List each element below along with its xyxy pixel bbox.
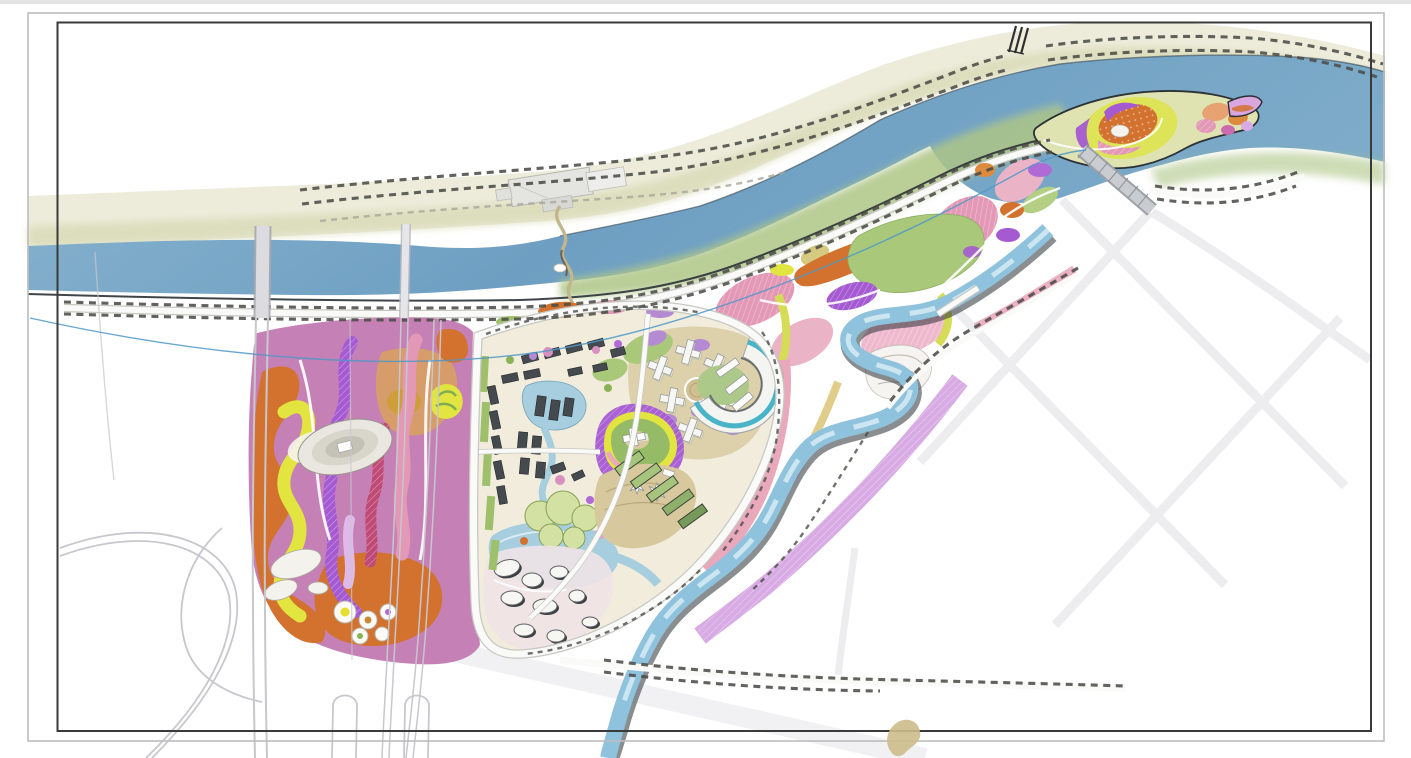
west-pink-park	[249, 318, 480, 665]
screen-top-edge	[0, 0, 1411, 4]
master-plan-page	[0, 0, 1411, 758]
master-plan-drawing	[0, 0, 1411, 758]
